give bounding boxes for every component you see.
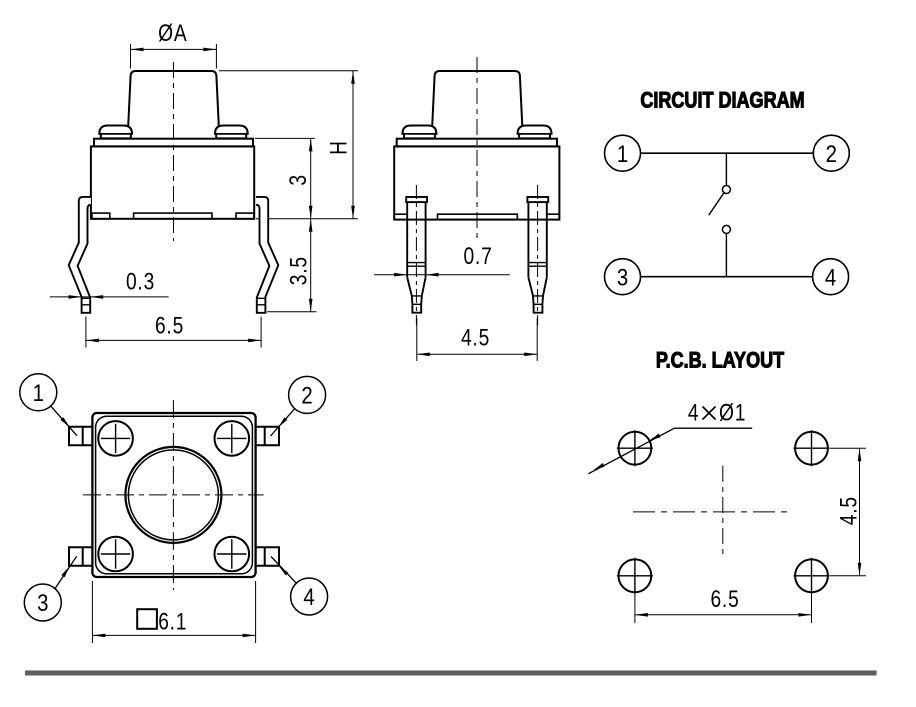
- svg-text:3: 3: [37, 590, 48, 617]
- svg-text:2: 2: [826, 141, 837, 168]
- svg-text:2: 2: [301, 382, 312, 409]
- svg-text:CIRCUIT DIAGRAM: CIRCUIT DIAGRAM: [640, 89, 804, 113]
- svg-text:4.5: 4.5: [834, 496, 862, 525]
- svg-text:6.5: 6.5: [710, 585, 739, 613]
- svg-text:ØA: ØA: [158, 19, 187, 47]
- svg-text:4: 4: [688, 398, 699, 426]
- svg-text:3: 3: [284, 174, 312, 185]
- svg-text:3.5: 3.5: [284, 256, 312, 285]
- svg-text:H: H: [324, 140, 352, 155]
- svg-text:0.3: 0.3: [126, 268, 155, 296]
- svg-text:4: 4: [825, 264, 836, 291]
- svg-text:4: 4: [303, 584, 314, 611]
- svg-text:6.5: 6.5: [155, 312, 184, 340]
- svg-text:6.1: 6.1: [158, 607, 187, 635]
- svg-text:0.7: 0.7: [463, 242, 492, 270]
- svg-text:P.C.B. LAYOUT: P.C.B. LAYOUT: [656, 349, 785, 373]
- svg-text:3: 3: [617, 264, 628, 291]
- svg-text:1: 1: [33, 379, 44, 406]
- svg-text:Ø1: Ø1: [719, 398, 746, 426]
- svg-text:1: 1: [617, 141, 628, 168]
- svg-text:4.5: 4.5: [461, 323, 490, 351]
